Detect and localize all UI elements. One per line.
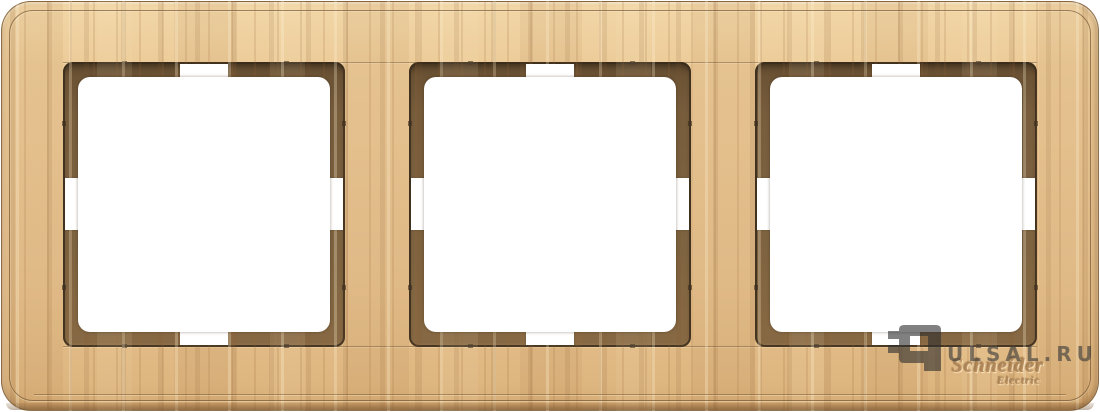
pulsal-plug-logo-icon — [888, 325, 944, 371]
brand-subname: Electric — [990, 376, 1048, 387]
frame-groove-line-bottom — [34, 394, 1066, 395]
product-photo: Schneider Electric ULSAL.RU — [0, 0, 1100, 412]
watermark: ULSAL.RU — [888, 325, 1098, 371]
watermark-text: ULSAL.RU — [947, 325, 1098, 366]
frame-bottom-bevel — [6, 403, 1094, 410]
